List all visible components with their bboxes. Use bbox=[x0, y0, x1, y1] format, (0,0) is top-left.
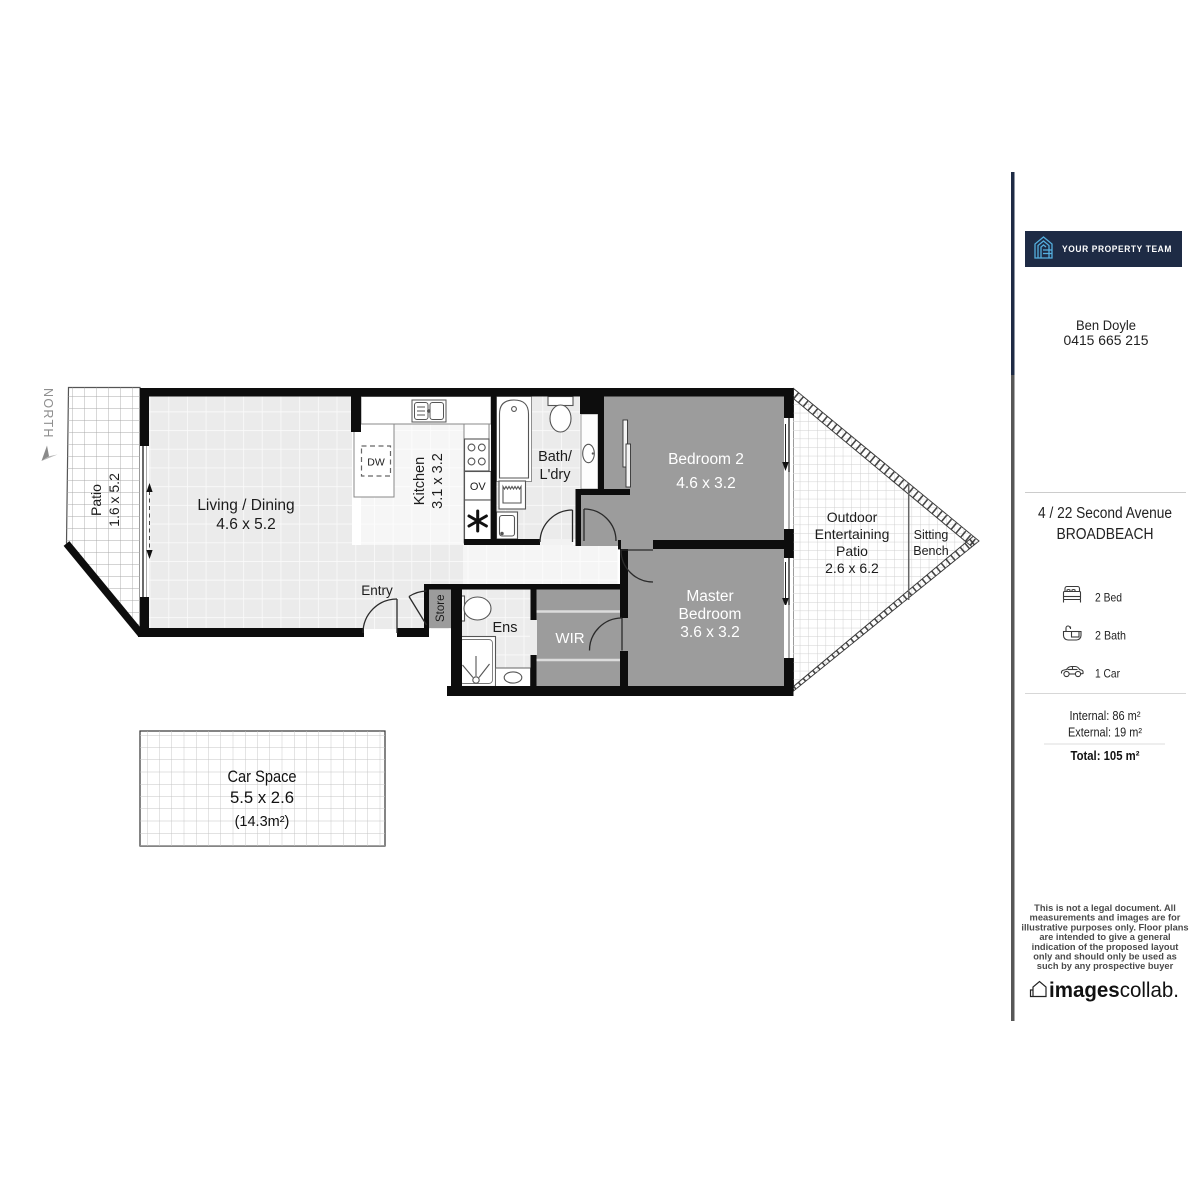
svg-text:Car Space: Car Space bbox=[228, 767, 297, 786]
svg-text:(14.3m²): (14.3m²) bbox=[235, 814, 290, 830]
svg-text:External: 19 m²: External: 19 m² bbox=[1068, 726, 1142, 740]
svg-text:illustrative purposes only. Fl: illustrative purposes only. Floor plans bbox=[1021, 922, 1188, 932]
svg-text:indication of the proposed lay: indication of the proposed layout bbox=[1032, 942, 1179, 952]
svg-text:5.5 x 2.6: 5.5 x 2.6 bbox=[230, 788, 294, 807]
svg-text:3.1 x 3.2: 3.1 x 3.2 bbox=[430, 453, 446, 509]
svg-text:This is not a legal document.: This is not a legal document. All bbox=[1034, 903, 1176, 913]
svg-text:such by any prospective buyer: such by any prospective buyer bbox=[1037, 961, 1174, 971]
svg-text:Patio: Patio bbox=[836, 543, 868, 559]
svg-text:2 Bed: 2 Bed bbox=[1095, 591, 1122, 605]
svg-text:YOUR PROPERTY TEAM: YOUR PROPERTY TEAM bbox=[1062, 244, 1172, 255]
svg-text:2 Bath: 2 Bath bbox=[1095, 629, 1126, 643]
svg-text:L'dry: L'dry bbox=[540, 467, 572, 483]
svg-text:Master: Master bbox=[686, 588, 733, 605]
svg-text:BROADBEACH: BROADBEACH bbox=[1057, 526, 1154, 543]
svg-text:0415 665 215: 0415 665 215 bbox=[1064, 333, 1149, 349]
svg-text:WIR: WIR bbox=[555, 630, 584, 647]
svg-text:NORTH: NORTH bbox=[41, 388, 55, 439]
svg-text:Sitting: Sitting bbox=[914, 528, 949, 542]
svg-text:are intended to give a general: are intended to give a general bbox=[1039, 932, 1170, 942]
svg-text:only and should only be used a: only and should only be used as bbox=[1033, 952, 1177, 962]
svg-text:Store: Store bbox=[435, 595, 447, 623]
svg-text:Ben Doyle: Ben Doyle bbox=[1076, 318, 1136, 334]
svg-text:Bedroom: Bedroom bbox=[679, 606, 742, 623]
svg-text:1.6 x 5.2: 1.6 x 5.2 bbox=[106, 473, 122, 527]
svg-text:OV: OV bbox=[470, 481, 487, 493]
svg-text:4.6 x 3.2: 4.6 x 3.2 bbox=[676, 475, 735, 492]
svg-text:Patio: Patio bbox=[88, 484, 104, 516]
svg-text:1 Car: 1 Car bbox=[1095, 667, 1120, 681]
svg-text:Total: 105 m²: Total: 105 m² bbox=[1071, 748, 1141, 763]
svg-text:Bench: Bench bbox=[913, 544, 948, 558]
svg-text:3.6 x 3.2: 3.6 x 3.2 bbox=[680, 624, 739, 641]
svg-text:4.6 x 5.2: 4.6 x 5.2 bbox=[216, 516, 275, 533]
svg-text:Entertaining: Entertaining bbox=[815, 526, 890, 542]
svg-text:imagescollab.: imagescollab. bbox=[1049, 979, 1179, 1002]
svg-text:DW: DW bbox=[367, 457, 385, 469]
svg-text:Kitchen: Kitchen bbox=[412, 457, 428, 505]
svg-text:Ens: Ens bbox=[493, 620, 518, 636]
svg-text:Entry: Entry bbox=[361, 583, 393, 598]
svg-text:Living / Dining: Living / Dining bbox=[197, 497, 294, 514]
svg-text:2.6 x 6.2: 2.6 x 6.2 bbox=[825, 560, 879, 576]
svg-text:4 / 22 Second Avenue: 4 / 22 Second Avenue bbox=[1038, 505, 1172, 522]
svg-text:measurements and images are fo: measurements and images are for bbox=[1030, 913, 1181, 923]
svg-text:Bath/: Bath/ bbox=[538, 449, 573, 465]
svg-text:Internal: 86 m²: Internal: 86 m² bbox=[1070, 709, 1141, 723]
svg-text:Outdoor: Outdoor bbox=[827, 509, 878, 525]
svg-text:Bedroom 2: Bedroom 2 bbox=[668, 451, 744, 468]
